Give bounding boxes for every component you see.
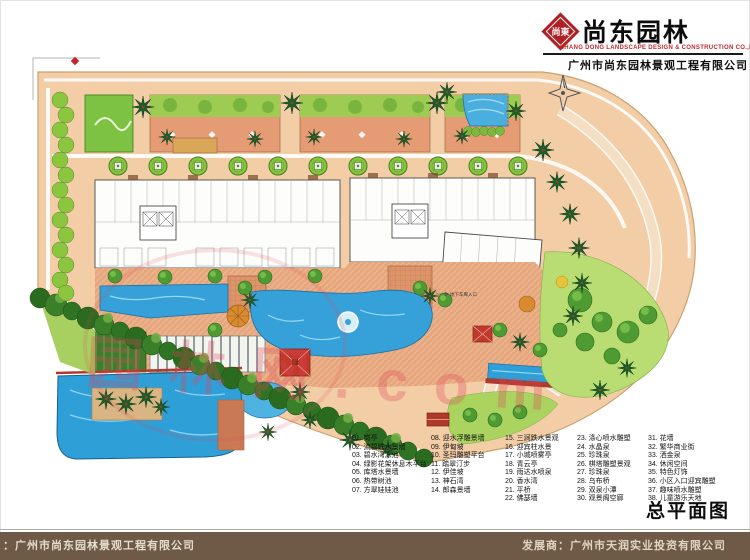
legend-item: 19. 雨达水喷泉 bbox=[505, 469, 559, 478]
footer-developer: 发展商：广州市天润实业投资有限公司 bbox=[522, 532, 726, 560]
legend-item: 28. 乌布桥 bbox=[577, 478, 631, 487]
legend-column-2: 08. 迎水浮雕景墙 09. 伊甸坡 10. 圣玛雕塑平台 11. 踏翠汀步 1… bbox=[431, 435, 485, 495]
header-rule bbox=[543, 53, 743, 55]
footer-divider bbox=[0, 529, 750, 530]
garage-entrance-text: 地下车库入口 bbox=[450, 291, 477, 298]
legend-item: 25. 珍珠泉 bbox=[577, 452, 631, 461]
legend-column-4: 23. 涤心喷水雕塑 24. 水晶泉 25. 珍珠泉 26. 棋塔雕塑景观 27… bbox=[577, 435, 631, 504]
footer-bar: ：广州市尚东园林景观工程有限公司 发展商：广州市天润实业投资有限公司 bbox=[0, 532, 750, 560]
legend-item: 07. 方翠娃娃池 bbox=[352, 487, 427, 496]
legend-item: 05. 库塔水景墙 bbox=[352, 469, 427, 478]
legend-item: 29. 双泉小潭 bbox=[577, 487, 631, 496]
legend-item: 10. 圣玛雕塑平台 bbox=[431, 452, 485, 461]
company-name-cn: 广州市尚东园林景观工程有限公司 bbox=[568, 57, 748, 73]
legend-item: 06. 热带树池 bbox=[352, 478, 427, 487]
company-subtitle-en: SHANG DONG LANDSCAPE DESIGN & CONSTRUCTI… bbox=[560, 45, 750, 51]
parking-bays bbox=[85, 95, 520, 153]
legend-item: 24. 水晶泉 bbox=[577, 444, 631, 453]
legend-item: 14. 郎森景墙 bbox=[431, 487, 485, 496]
legend-column-5: 31. 花墙 32. 繁华商业街 33. 洒金泉 34. 休闲空间 35. 特色… bbox=[648, 435, 716, 504]
legend-column-3: 15. 三涧跌水景观 16. 迎宾柱水景 17. 小城喷雾亭 18. 青云亭 1… bbox=[505, 435, 559, 504]
legend-item: 15. 三涧跌水景观 bbox=[505, 435, 559, 444]
legend-item: 16. 迎宾柱水景 bbox=[505, 444, 559, 453]
legend-item: 21. 平桥 bbox=[505, 487, 559, 496]
legend-item: 31. 花墙 bbox=[648, 435, 716, 444]
drawing-sheet: 地下车库入口 园林网.com 尚東 尚东园林 SHANG DONG LANDSC… bbox=[0, 0, 750, 560]
legend-item: 12. 伊佳坡 bbox=[431, 469, 485, 478]
legend-item: 20. 香水湾 bbox=[505, 478, 559, 487]
legend-item: 22. 佛瑟墙 bbox=[505, 495, 559, 504]
legend-item: 23. 涤心喷水雕塑 bbox=[577, 435, 631, 444]
legend-item: 08. 迎水浮雕景墙 bbox=[431, 435, 485, 444]
company-title: 尚东园林 bbox=[582, 13, 690, 49]
legend-item: 35. 特色灯饰 bbox=[648, 469, 716, 478]
legend-item: 37. 趣味喷水雕塑 bbox=[648, 487, 716, 496]
plan-title: 总平面图 bbox=[620, 496, 730, 523]
legend-item: 27. 珍珠泉 bbox=[577, 469, 631, 478]
legend-item: 01. 岗亭 bbox=[352, 435, 427, 444]
legend-column-1: 01. 岗亭 02. 流碧跌水景墙 03. 碧水湾泳池 04. 绿影花架休息木平… bbox=[352, 435, 427, 495]
legend-item: 33. 洒金泉 bbox=[648, 452, 716, 461]
legend-item: 09. 伊甸坡 bbox=[431, 444, 485, 453]
legend-item: 03. 碧水湾泳池 bbox=[352, 452, 427, 461]
legend-item: 17. 小城喷雾亭 bbox=[505, 452, 559, 461]
legend-item: 36. 小区入口迎宾雕塑 bbox=[648, 478, 716, 487]
legend-item: 02. 流碧跌水景墙 bbox=[352, 444, 427, 453]
footer-designer: ：广州市尚东园林景观工程有限公司 bbox=[3, 532, 195, 560]
logo-glyphs: 尚東 bbox=[547, 18, 574, 45]
legend-item: 32. 繁华商业街 bbox=[648, 444, 716, 453]
corner-water-feature bbox=[463, 94, 508, 137]
legend-item: 13. 神石湾 bbox=[431, 478, 485, 487]
